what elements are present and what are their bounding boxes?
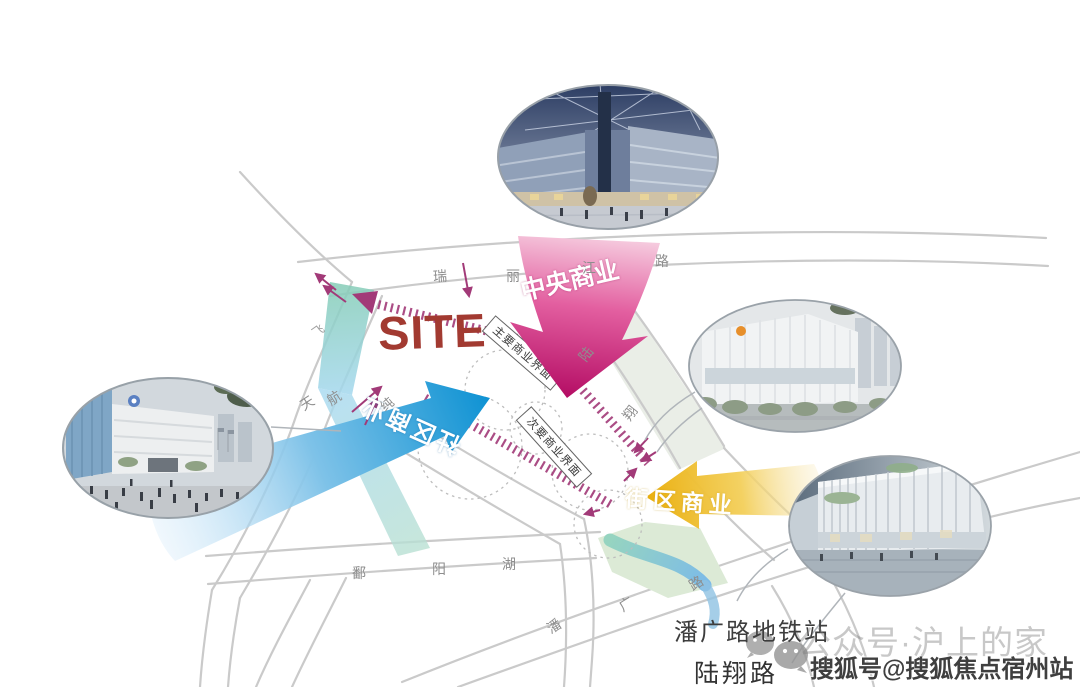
photo-mall-day	[689, 300, 912, 434]
map-canvas: 主要商业界面 次要商业界面	[0, 0, 1080, 687]
photo-mall-interior	[497, 84, 723, 234]
photo-mall-plaza	[63, 378, 273, 518]
river-tail	[705, 585, 715, 624]
site-analysis-map: 主要商业界面 次要商业界面	[0, 0, 1080, 687]
photo-mall-evening	[789, 445, 992, 597]
secondary-interface-label: 次要商业界面	[516, 407, 591, 487]
